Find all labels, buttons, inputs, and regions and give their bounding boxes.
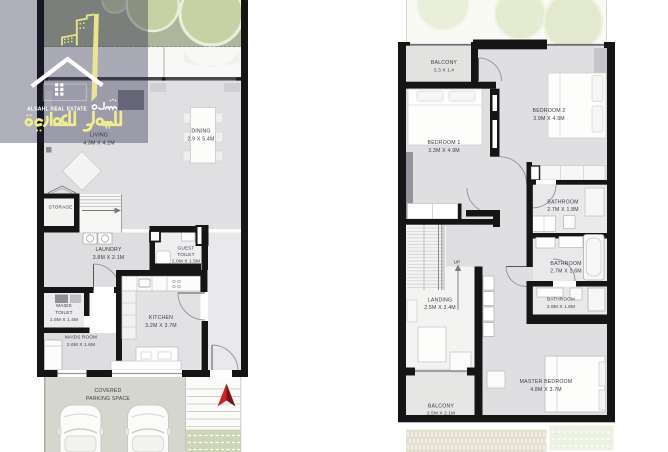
svg-text:UP: UP [454, 260, 461, 265]
svg-text:4.8M X 3.7M: 4.8M X 3.7M [530, 387, 562, 393]
svg-text:3.9M X 4.9M: 3.9M X 4.9M [533, 116, 565, 122]
svg-text:2.7M X 1.8M: 2.7M X 1.8M [547, 207, 579, 213]
svg-text:LANDING: LANDING [428, 298, 452, 304]
svg-text:2.8M X 1.6M: 2.8M X 1.6M [547, 304, 575, 309]
svg-text:2.7M X 1.6M: 2.7M X 1.6M [550, 269, 582, 275]
svg-text:ALSAHL REAL ESTATE: ALSAHL REAL ESTATE [27, 107, 88, 113]
svg-text:LAUNDRY: LAUNDRY [95, 247, 121, 253]
svg-text:2.5M X 3.4M: 2.5M X 3.4M [424, 305, 456, 311]
svg-text:PARKING SPACE: PARKING SPACE [86, 396, 131, 402]
svg-text:MAIDS ROOM: MAIDS ROOM [65, 335, 97, 340]
svg-text:2.5M X 2.1M: 2.5M X 2.1M [427, 410, 455, 415]
svg-text:3.8M X 2.1M: 3.8M X 2.1M [93, 255, 125, 261]
svg-text:COVERED: COVERED [94, 388, 121, 394]
svg-text:BEDROOM 2: BEDROOM 2 [533, 108, 566, 114]
svg-text:TOILET: TOILET [55, 310, 72, 315]
svg-text:TOILET: TOILET [177, 252, 194, 257]
svg-text:BEDROOM 1: BEDROOM 1 [428, 140, 461, 146]
svg-text:BATHROOM: BATHROOM [550, 261, 581, 267]
svg-text:STORAGE: STORAGE [49, 205, 73, 210]
svg-text:BALCONY: BALCONY [428, 404, 455, 410]
svg-text:GUEST: GUEST [178, 246, 195, 251]
svg-text:DINING: DINING [191, 129, 210, 135]
svg-text:BATHROOM: BATHROOM [547, 297, 575, 302]
svg-text:2.6M X 1.6M: 2.6M X 1.6M [67, 342, 95, 347]
svg-text:2.9 X 5.4M: 2.9 X 5.4M [187, 137, 214, 143]
svg-text:3.2M X 3.7M: 3.2M X 3.7M [145, 323, 177, 329]
svg-text:KITCHEN: KITCHEN [149, 315, 173, 321]
svg-text:5.3 X 1.4: 5.3 X 1.4 [434, 68, 454, 73]
svg-text:MAIDS: MAIDS [56, 303, 72, 308]
svg-text:MASTER BEDROOM: MASTER BEDROOM [520, 379, 573, 385]
svg-text:1.5M X 1.4M: 1.5M X 1.4M [50, 317, 78, 322]
svg-text:BALCONY: BALCONY [431, 60, 458, 66]
svg-text:BATHROOM: BATHROOM [547, 200, 578, 206]
svg-text:3.3M X 4.9M: 3.3M X 4.9M [428, 148, 460, 154]
svg-text:2.0M X 1.5M: 2.0M X 1.5M [172, 259, 200, 264]
